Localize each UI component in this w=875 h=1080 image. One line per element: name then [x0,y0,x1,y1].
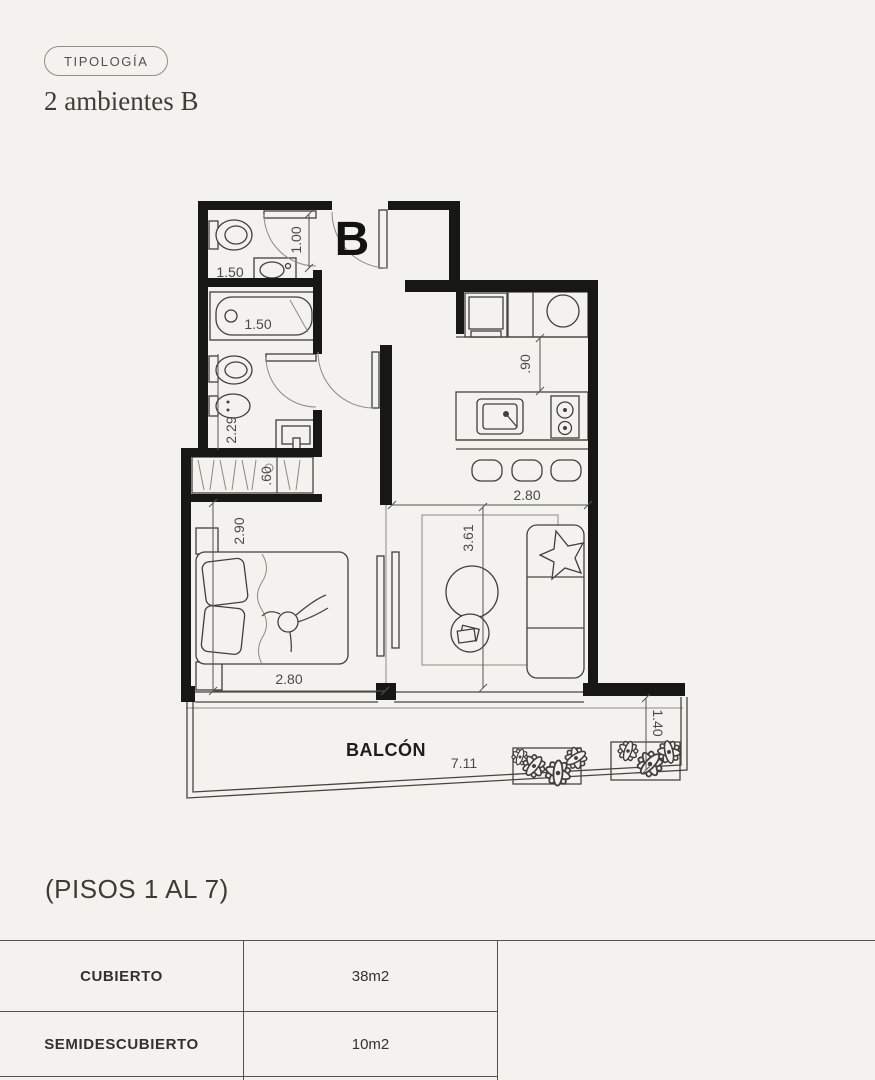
area-label-cubierto: CUBIERTO [0,941,243,1011]
nightstand [196,528,218,554]
dim-bath2-width: 1.50 [244,316,271,332]
dim-bedroom-width: 2.80 [275,671,302,687]
hallway-door [318,352,379,408]
dim-entry-door: 1.00 [288,226,304,253]
nightstand [196,662,222,690]
dim-bath1-width: 1.50 [216,264,243,280]
pillow [201,605,246,655]
stool [551,460,581,481]
floor-plan-svg: 1.00 1.50 1.50 2.29 .60 .90 2.80 2.90 2.… [0,0,875,1080]
round-table [446,566,498,618]
floors-note: (PISOS 1 AL 7) [45,874,229,905]
table-border [497,940,498,1080]
dim-living-depth: 3.61 [460,524,476,551]
dim-kitchen-counter: .90 [517,354,533,374]
closet [192,457,313,493]
area-value-cubierto: 38m2 [244,941,497,1011]
dim-kitchen-width: 2.80 [513,487,540,503]
sofa [527,525,584,678]
table-border [0,1076,497,1077]
dim-bath3-depth: 2.29 [223,416,239,443]
living-room [377,505,584,688]
round-sink [547,295,579,327]
balcony-planters [512,736,685,789]
pillow [201,558,248,607]
dim-balcony-width: 7.11 [451,755,477,771]
windows-and-balcony [186,692,687,798]
bedroom [196,528,348,690]
dim-bedroom-depth: 2.90 [231,517,247,544]
unit-label: B [335,213,370,266]
typology-page: TIPOLOGÍA 2 ambientes B [0,0,875,1080]
stool [512,460,542,481]
balcony-label: BALCÓN [346,739,426,760]
dim-balcony-depth: 1.40 [650,709,666,736]
area-label-semidescubierto: SEMIDESCUBIERTO [0,1012,243,1076]
kitchen [456,292,588,481]
dim-closet-depth: .60 [258,466,274,486]
stool [472,460,502,481]
area-value-semidescubierto: 10m2 [244,1012,497,1076]
